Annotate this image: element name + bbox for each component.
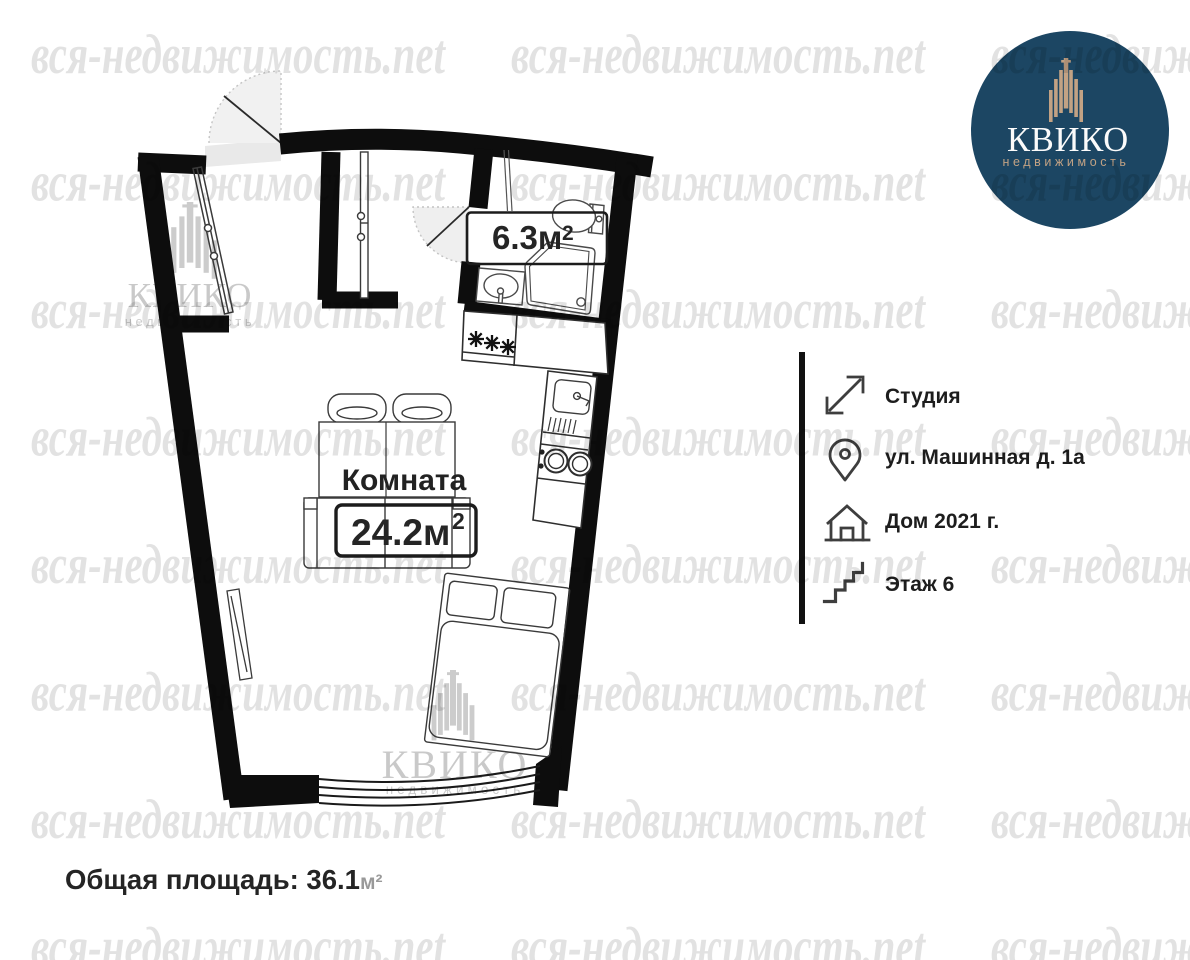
svg-text:вся-недвижимость.net: вся-недвижимость.net: [31, 279, 446, 341]
svg-text:вся-недвижимость.net: вся-недвижимость.net: [511, 917, 926, 960]
svg-text:вся-недвижимость.net: вся-недвижимость.net: [991, 917, 1190, 960]
svg-text:Комната: Комната: [342, 464, 467, 497]
svg-text:вся-недвижимость.net: вся-недвижимость.net: [31, 407, 446, 469]
svg-text:вся-недвижимость.net: вся-недвижимость.net: [31, 534, 446, 596]
svg-text:вся-недвижимость.net: вся-недвижимость.net: [991, 407, 1190, 469]
svg-text:вся-недвижимость.net: вся-недвижимость.net: [991, 279, 1190, 341]
svg-text:вся-недвижимость.net: вся-недвижимость.net: [31, 24, 446, 86]
svg-text:вся-недвижимость.net: вся-недвижимость.net: [511, 152, 926, 214]
svg-text:6.3м: 6.3м: [492, 219, 562, 256]
svg-text:вся-недвижимость.net: вся-недвижимость.net: [511, 24, 926, 86]
svg-text:вся-недвижимость.net: вся-недвижимость.net: [991, 662, 1190, 724]
svg-text:Студия: Студия: [885, 385, 961, 408]
svg-text:вся-недвижимость.net: вся-недвижимость.net: [511, 789, 926, 851]
svg-text:вся-недвижимость.net: вся-недвижимость.net: [991, 534, 1190, 596]
svg-text:вся-недвижимость.net: вся-недвижимость.net: [511, 534, 926, 596]
svg-text:2: 2: [562, 222, 574, 245]
svg-text:2: 2: [452, 508, 465, 534]
svg-text:вся-недвижимость.net: вся-недвижимость.net: [31, 152, 446, 214]
svg-text:вся-недвижимость.net: вся-недвижимость.net: [991, 789, 1190, 851]
svg-text:вся-недвижимость.net: вся-недвижимость.net: [991, 152, 1190, 214]
svg-text:вся-недвижимость.net: вся-недвижимость.net: [31, 917, 446, 960]
svg-text:вся-недвижимость.net: вся-недвижимость.net: [511, 662, 926, 724]
svg-text:Общая площадь: 36.1м²: Общая площадь: 36.1м²: [65, 864, 382, 895]
svg-text:вся-недвижимость.net: вся-недвижимость.net: [31, 662, 446, 724]
svg-text:вся-недвижимость.net: вся-недвижимость.net: [511, 407, 926, 469]
svg-text:вся-недвижимость.net: вся-недвижимость.net: [511, 279, 926, 341]
svg-text:вся-недвижимость.net: вся-недвижимость.net: [991, 24, 1190, 86]
svg-text:вся-недвижимость.net: вся-недвижимость.net: [31, 789, 446, 851]
svg-text:Дом 2021 г.: Дом 2021 г.: [885, 510, 999, 533]
